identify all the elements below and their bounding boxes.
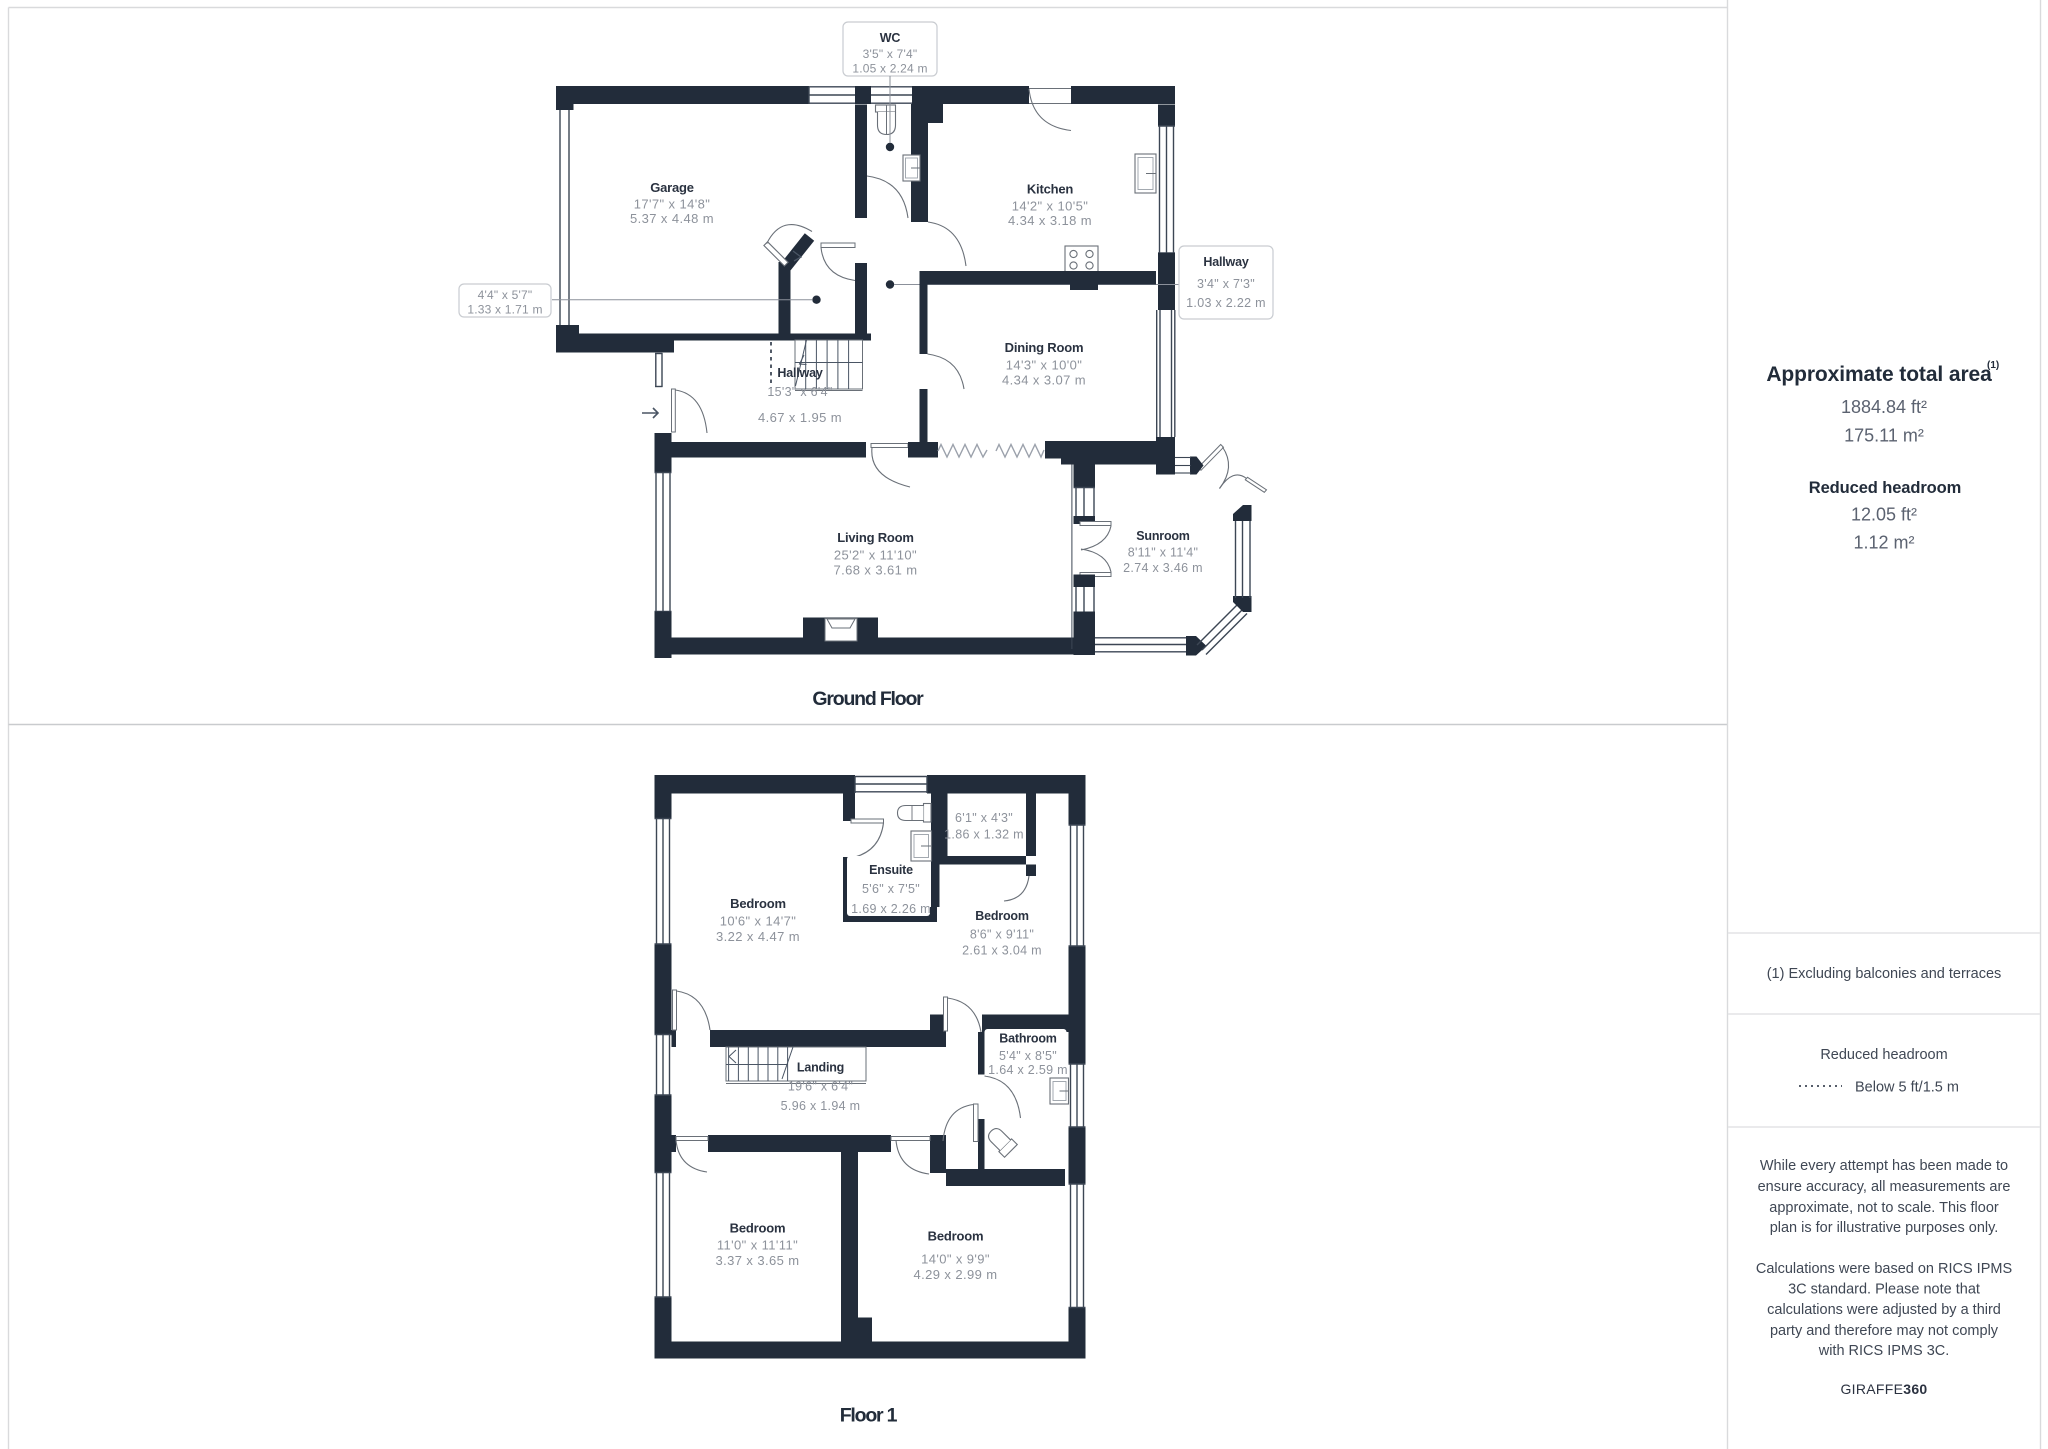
svg-text:19'6" x 6'4": 19'6" x 6'4" <box>788 1080 853 1094</box>
svg-text:GIRAFFE360: GIRAFFE360 <box>1840 1381 1927 1397</box>
svg-text:Bedroom: Bedroom <box>928 1229 984 1244</box>
svg-text:25'2" x 11'10": 25'2" x 11'10" <box>834 548 917 563</box>
svg-text:Ensuite: Ensuite <box>869 863 913 877</box>
svg-text:12.05 ft²: 12.05 ft² <box>1851 505 1917 525</box>
svg-text:While every attempt has been m: While every attempt has been made to <box>1760 1158 2008 1174</box>
svg-text:4.34 x 3.07 m: 4.34 x 3.07 m <box>1002 373 1086 388</box>
svg-text:8'11" x 11'4": 8'11" x 11'4" <box>1128 546 1199 560</box>
svg-text:14'0" x 9'9": 14'0" x 9'9" <box>921 1252 990 1267</box>
svg-text:3.22 x 4.47 m: 3.22 x 4.47 m <box>716 929 800 944</box>
svg-text:Garage: Garage <box>650 180 694 195</box>
svg-text:approximate, not to scale. Thi: approximate, not to scale. This floor <box>1769 1200 1999 1216</box>
svg-text:6'1" x 4'3": 6'1" x 4'3" <box>955 811 1013 825</box>
svg-text:Kitchen: Kitchen <box>1027 182 1074 197</box>
svg-text:4.34 x 3.18 m: 4.34 x 3.18 m <box>1008 213 1092 228</box>
svg-text:Calculations were based on RIC: Calculations were based on RICS IPMS <box>1756 1261 2012 1277</box>
svg-text:14'2" x 10'5": 14'2" x 10'5" <box>1012 199 1089 214</box>
svg-text:1.03 x 2.22 m: 1.03 x 2.22 m <box>1186 296 1266 310</box>
svg-text:11'0" x 11'11": 11'0" x 11'11" <box>717 1238 798 1253</box>
svg-text:Hallway: Hallway <box>1203 255 1248 269</box>
svg-text:2.61 x 3.04 m: 2.61 x 3.04 m <box>962 944 1042 958</box>
svg-text:Living Room: Living Room <box>837 530 914 545</box>
svg-text:1.12 m²: 1.12 m² <box>1853 533 1914 553</box>
svg-text:Dining Room: Dining Room <box>1005 340 1084 355</box>
svg-text:Below 5 ft/1.5 m: Below 5 ft/1.5 m <box>1855 1080 1959 1096</box>
svg-text:(1): (1) <box>1987 360 1999 371</box>
svg-text:2.74 x 3.46 m: 2.74 x 3.46 m <box>1123 561 1203 575</box>
svg-text:7.68 x 3.61 m: 7.68 x 3.61 m <box>834 563 918 578</box>
svg-text:Approximate total area: Approximate total area <box>1766 363 1992 386</box>
svg-text:1.05 x 2.24 m: 1.05 x 2.24 m <box>852 62 927 76</box>
svg-text:1.33 x 1.71 m: 1.33 x 1.71 m <box>467 303 542 317</box>
svg-text:14'3" x 10'0": 14'3" x 10'0" <box>1006 358 1083 373</box>
svg-text:1.86 x 1.32 m: 1.86 x 1.32 m <box>944 828 1024 842</box>
svg-text:3C standard. Please note that: 3C standard. Please note that <box>1788 1282 1980 1298</box>
svg-text:Hallway: Hallway <box>777 366 822 380</box>
svg-text:Bathroom: Bathroom <box>999 1032 1057 1046</box>
svg-text:calculations were adjusted by: calculations were adjusted by a third <box>1767 1302 2001 1318</box>
svg-text:party and therefore may not co: party and therefore may not comply <box>1770 1323 1999 1339</box>
svg-text:5'4" x 8'5": 5'4" x 8'5" <box>999 1049 1057 1063</box>
svg-text:4'4" x 5'7": 4'4" x 5'7" <box>478 288 533 302</box>
svg-text:Bedroom: Bedroom <box>730 1221 786 1236</box>
svg-text:plan is for illustrative purpo: plan is for illustrative purposes only. <box>1770 1220 1999 1236</box>
svg-text:5'6" x 7'5": 5'6" x 7'5" <box>862 882 920 896</box>
svg-text:Bedroom: Bedroom <box>730 896 786 911</box>
svg-text:5.96 x 1.94 m: 5.96 x 1.94 m <box>781 1099 861 1113</box>
svg-text:(1) Excluding balconies and te: (1) Excluding balconies and terraces <box>1767 966 2002 982</box>
svg-text:175.11 m²: 175.11 m² <box>1844 426 1924 446</box>
svg-text:1.69 x 2.26 m: 1.69 x 2.26 m <box>851 902 931 916</box>
svg-text:5.37 x 4.48 m: 5.37 x 4.48 m <box>630 211 714 226</box>
svg-text:Ground Floor: Ground Floor <box>812 688 924 710</box>
svg-text:3'4" x 7'3": 3'4" x 7'3" <box>1197 277 1255 291</box>
svg-text:4.67 x 1.95 m: 4.67 x 1.95 m <box>758 410 842 425</box>
svg-text:Landing: Landing <box>797 1061 844 1075</box>
svg-text:WC: WC <box>880 31 901 45</box>
svg-text:10'6" x 14'7": 10'6" x 14'7" <box>720 914 797 929</box>
svg-text:Reduced headroom: Reduced headroom <box>1820 1047 1947 1063</box>
svg-text:15'3" x 6'4": 15'3" x 6'4" <box>767 385 832 399</box>
svg-text:Reduced headroom: Reduced headroom <box>1809 479 1961 497</box>
svg-text:ensure accuracy, all measureme: ensure accuracy, all measurements are <box>1758 1179 2011 1195</box>
svg-text:1.64 x 2.59 m: 1.64 x 2.59 m <box>988 1063 1068 1077</box>
svg-text:3.37 x 3.65 m: 3.37 x 3.65 m <box>716 1253 800 1268</box>
svg-text:3'5" x 7'4": 3'5" x 7'4" <box>863 47 918 61</box>
svg-text:8'6" x 9'11": 8'6" x 9'11" <box>970 928 1034 942</box>
svg-text:Bedroom: Bedroom <box>975 909 1029 923</box>
svg-text:17'7" x 14'8": 17'7" x 14'8" <box>634 197 711 212</box>
svg-text:with RICS IPMS 3C.: with RICS IPMS 3C. <box>1818 1343 1950 1359</box>
svg-text:Floor 1: Floor 1 <box>840 1405 898 1427</box>
svg-text:1884.84 ft²: 1884.84 ft² <box>1841 397 1927 417</box>
svg-text:4.29 x 2.99 m: 4.29 x 2.99 m <box>914 1267 998 1282</box>
svg-text:Sunroom: Sunroom <box>1136 529 1190 543</box>
